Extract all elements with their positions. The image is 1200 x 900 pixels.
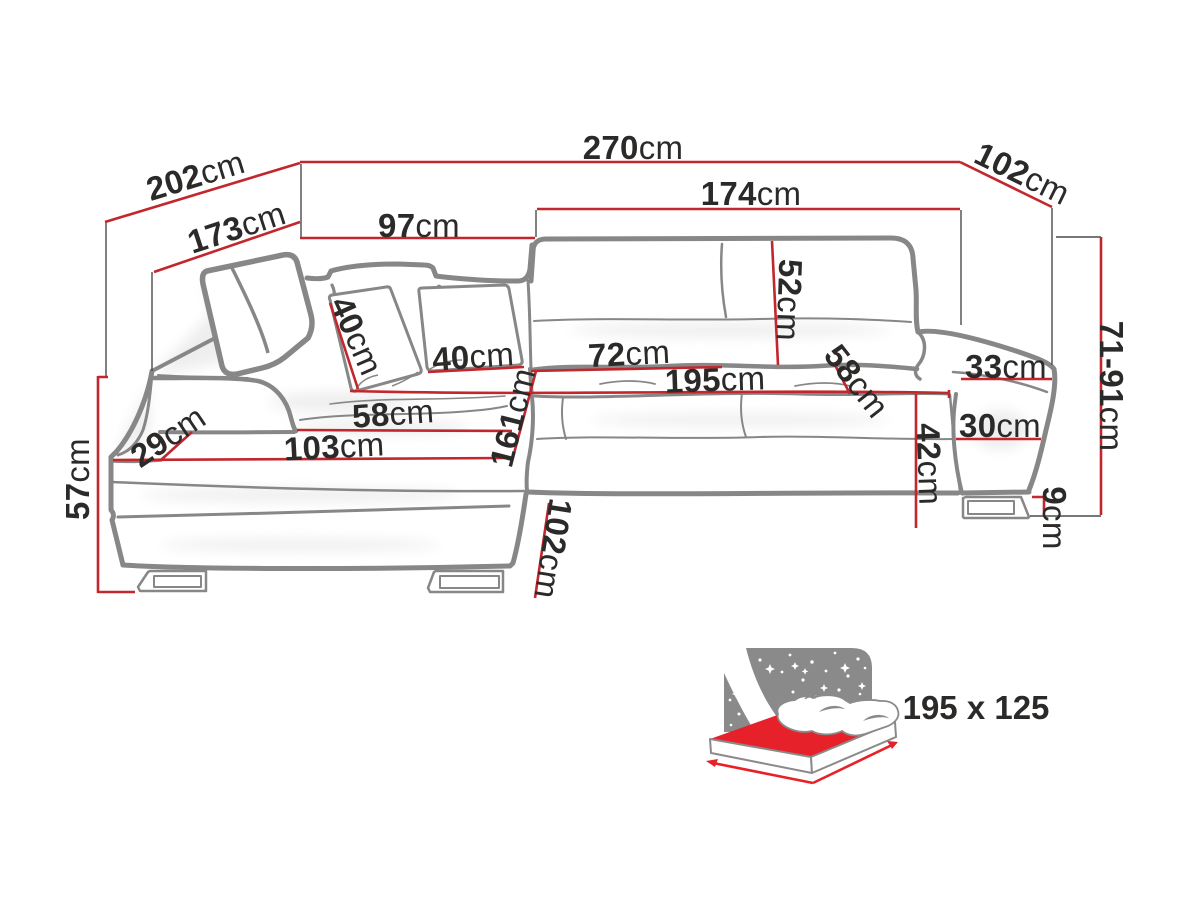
svg-text:174cm: 174cm [701,175,802,212]
svg-text:103cm: 103cm [283,425,385,467]
svg-text:97cm: 97cm [378,207,460,244]
svg-text:57cm: 57cm [59,438,96,520]
svg-text:33cm: 33cm [965,348,1047,385]
svg-text:30cm: 30cm [959,407,1041,444]
svg-text:71-91cm: 71-91cm [1093,321,1130,452]
svg-text:72cm: 72cm [587,333,671,374]
svg-text:195cm: 195cm [664,359,766,399]
svg-text:52cm: 52cm [770,258,810,341]
svg-text:42cm: 42cm [910,422,950,505]
svg-text:9cm: 9cm [1036,486,1073,549]
svg-text:40cm: 40cm [431,335,515,378]
svg-text:270cm: 270cm [583,129,684,166]
svg-text:195 x 125: 195 x 125 [903,689,1050,726]
